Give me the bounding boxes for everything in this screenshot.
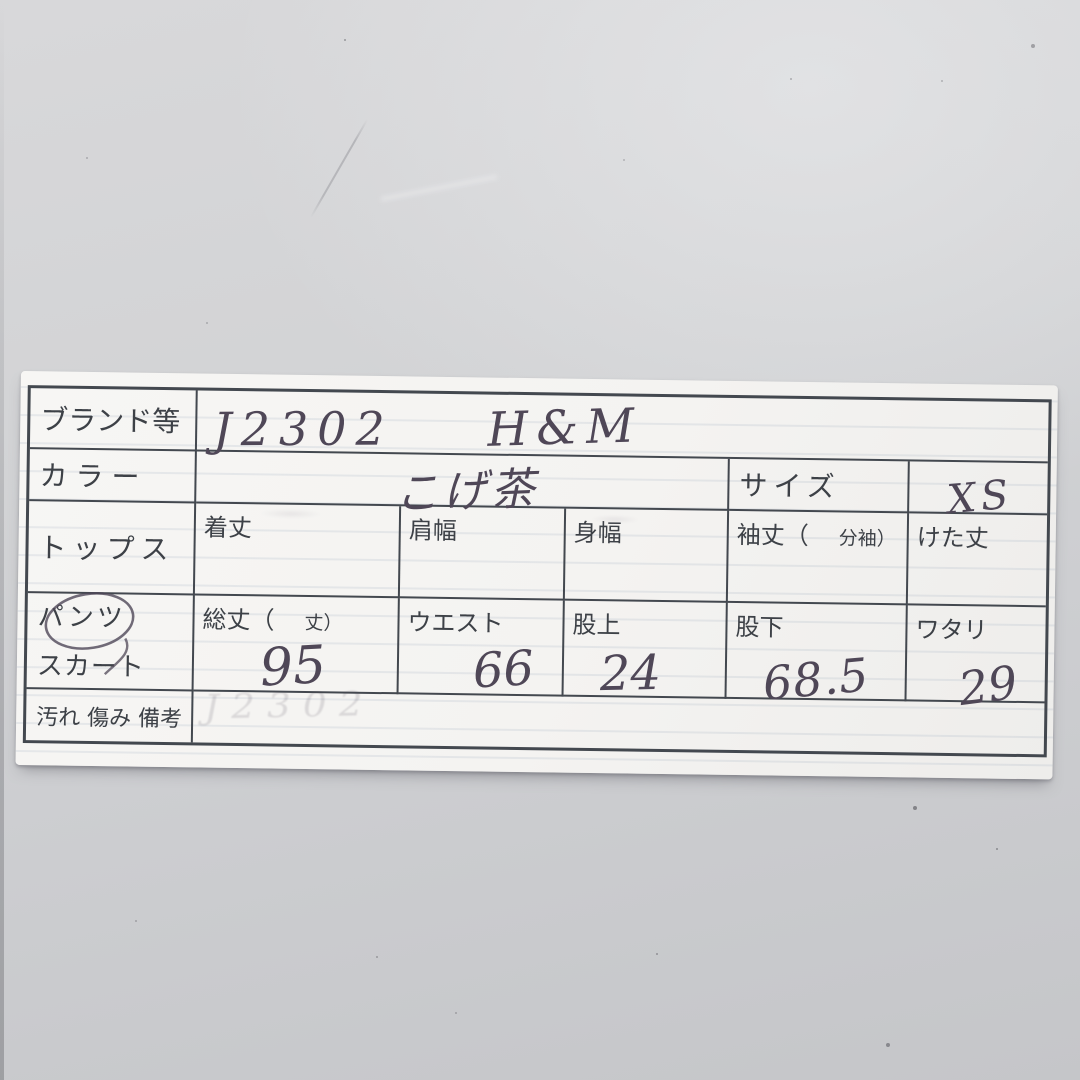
ghost-handwriting-bleed: J2302	[204, 684, 375, 728]
dust-specks	[0, 0, 2, 2]
bottoms-cell-thigh-width: ワタリ 29	[906, 605, 1045, 703]
measure-label: ワタリ	[915, 616, 987, 645]
measure-label: 股上	[572, 611, 620, 640]
measure-label-paren: 丈）	[304, 612, 342, 635]
tops-label: トップス	[38, 526, 175, 568]
bottoms-label-cell: パンツ スカート	[27, 593, 195, 691]
measurement-card: ブランド等 J2302 H&M カラー こげ茶 サイズ XS トップス	[15, 371, 1057, 779]
measure-label: 股下	[735, 613, 783, 642]
measure-label: 総丈（	[202, 606, 274, 635]
bottoms-cell-waist: ウエスト 66	[399, 598, 565, 696]
tops-cell-chest-width: 身幅	[565, 509, 729, 603]
photo-background: ブランド等 J2302 H&M カラー こげ茶 サイズ XS トップス	[0, 0, 1080, 1080]
tops-label-cell: トップス	[28, 501, 196, 595]
measure-label: 着丈	[204, 514, 252, 543]
tops-cell-yuki-length: けた丈	[908, 513, 1047, 607]
tops-cell-shoulder-width: 肩幅	[400, 506, 566, 600]
measure-label: 肩幅	[409, 516, 457, 545]
handwritten-value: 66	[471, 640, 535, 699]
photo-edge-shade	[0, 0, 4, 1080]
bottoms-cell-total-length: 総丈（丈） 95	[194, 595, 400, 694]
handwritten-value: 24	[599, 645, 661, 702]
size-label-cell: サイズ	[729, 459, 910, 514]
notes-label-cell: 汚れ 傷み 備考	[26, 689, 194, 742]
measure-label: 袖丈（	[737, 521, 809, 550]
size-label: サイズ	[739, 464, 841, 505]
bottoms-label-pants: パンツ	[37, 596, 193, 635]
measurement-table: ブランド等 J2302 H&M カラー こげ茶 サイズ XS トップス	[23, 385, 1052, 757]
color-label: カラー	[39, 454, 148, 496]
ink-bleed-smudge	[246, 506, 336, 521]
ink-bleed-smudge	[580, 513, 650, 526]
tops-cell-body-length: 着丈	[195, 503, 401, 598]
color-value-cell: こげ茶	[196, 451, 730, 510]
measure-label: けた丈	[917, 524, 989, 553]
bottoms-cell-rise: 股上 24	[564, 601, 728, 699]
measure-label: ウエスト	[407, 608, 503, 637]
size-value-cell: XS	[909, 461, 1048, 515]
color-label-cell: カラー	[29, 449, 197, 503]
pencil-scratch-mark	[310, 119, 368, 218]
bottoms-cell-inseam: 股下 68.5	[726, 603, 907, 702]
handwritten-brand-name: H&M	[486, 398, 643, 458]
bottoms-label-skirt: スカート	[37, 645, 193, 684]
brand-label-cell: ブランド等	[30, 388, 198, 451]
tops-cell-sleeve-length: 袖丈（分袖）	[728, 511, 909, 606]
handwritten-product-code: J2302	[213, 402, 394, 457]
notes-value-cell: J2302	[193, 691, 1045, 754]
paper-crease	[381, 175, 498, 201]
notes-label: 汚れ 傷み 備考	[36, 699, 182, 733]
brand-label: ブランド等	[40, 398, 181, 440]
measure-label-paren: 分袖）	[839, 527, 896, 550]
